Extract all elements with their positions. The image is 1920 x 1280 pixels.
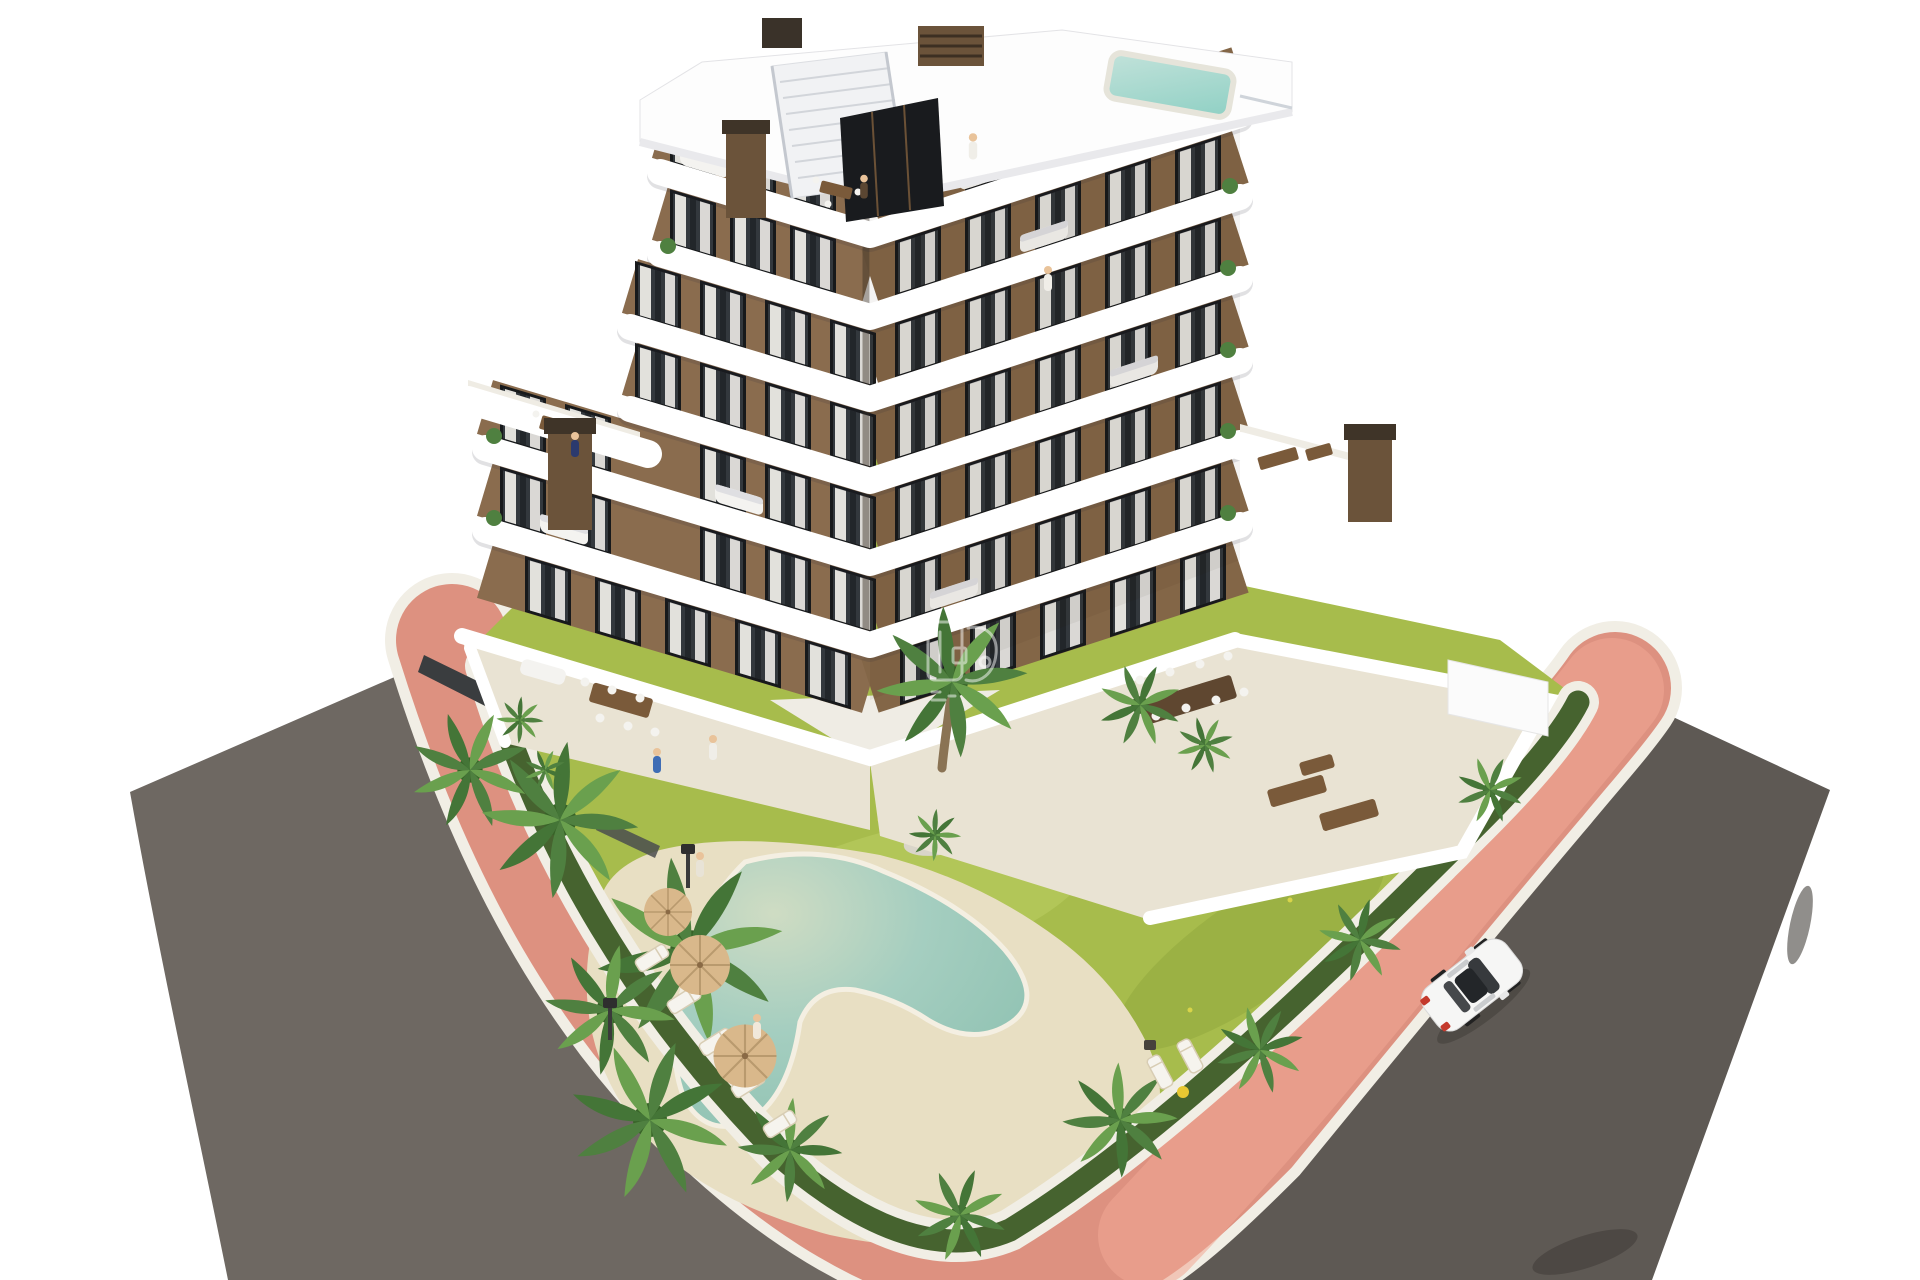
person bbox=[1044, 266, 1052, 291]
person bbox=[709, 735, 717, 760]
chimney-cap bbox=[722, 120, 770, 134]
parasol bbox=[714, 1025, 777, 1088]
person bbox=[860, 175, 868, 199]
chimney bbox=[726, 128, 766, 218]
person bbox=[753, 1014, 761, 1039]
parasol bbox=[670, 935, 730, 995]
chimney bbox=[548, 430, 592, 530]
person bbox=[696, 852, 704, 877]
parasol bbox=[644, 888, 692, 936]
side-table bbox=[1144, 1040, 1156, 1050]
chimney-cap bbox=[1344, 424, 1396, 440]
person bbox=[571, 432, 579, 457]
person bbox=[653, 748, 661, 773]
chimney bbox=[1348, 436, 1392, 522]
render-canvas bbox=[0, 0, 1920, 1280]
chimney-cap bbox=[544, 418, 596, 434]
rooftop-vent bbox=[762, 18, 802, 48]
penthouse-glass bbox=[840, 98, 944, 222]
aerial-render-scene bbox=[0, 0, 1920, 1280]
person bbox=[969, 133, 977, 159]
towel bbox=[1177, 1086, 1189, 1098]
